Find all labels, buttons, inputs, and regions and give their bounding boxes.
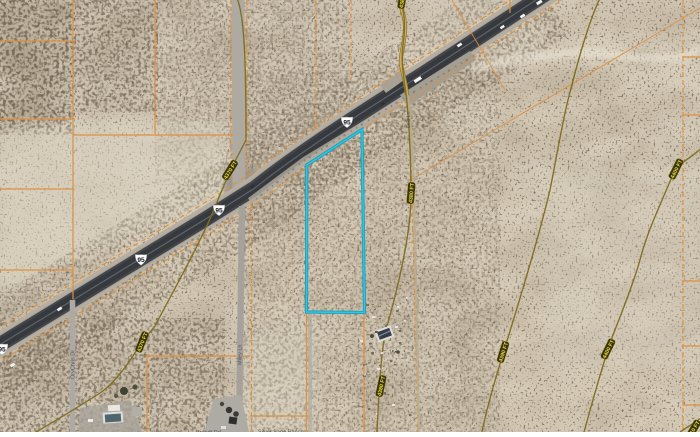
svg-text:Miley Ln: Miley Ln	[238, 345, 244, 365]
svg-text:OrvChris Dr: OrvChris Dr	[71, 350, 77, 379]
svg-text:Lela Ln: Lela Ln	[406, 111, 412, 128]
